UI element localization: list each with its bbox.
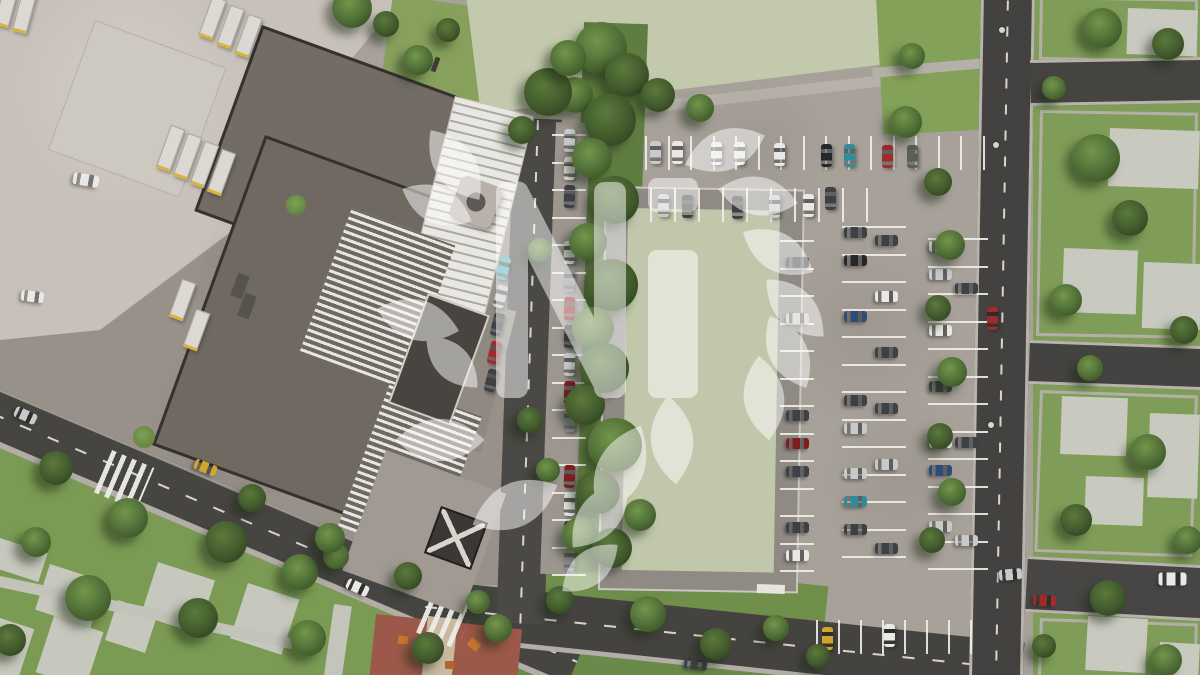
tree [592,528,632,568]
stalls-row-second-line [650,188,652,222]
tree [238,484,266,512]
tree [1082,8,1122,48]
car [563,464,575,487]
car [844,395,867,406]
car [563,492,575,515]
grass-circle [133,426,155,448]
car [907,145,918,168]
tree [484,614,512,642]
car [563,184,575,207]
tree [919,527,945,553]
stalls-col-de-line [928,403,988,405]
tree [528,238,552,262]
tree [39,451,73,485]
tree [436,18,460,42]
stalls-row-second-line [842,188,844,222]
car [875,459,898,470]
stalls-col-bc-line [842,556,906,558]
pad [1085,616,1148,673]
tree [1050,284,1082,316]
road-center-dashes [519,119,539,624]
play-equipment [445,661,454,669]
pad [1108,128,1200,189]
stalls-row-top-line [758,136,760,170]
stalls-row-top-line [645,136,647,170]
tree [763,615,789,641]
tree [508,116,536,144]
stalls-row-top-line [938,136,940,170]
car [1032,594,1056,606]
car [1158,573,1186,586]
stalls-lane-west-line [552,574,586,576]
tree [890,106,922,138]
tree [536,458,560,482]
tree [586,259,638,311]
tree [576,470,620,514]
pad [1060,396,1128,456]
stalls-row-second-line [746,188,748,222]
stalls-col-bc-line [842,336,906,338]
tree [572,138,612,178]
car [563,268,575,291]
stalls-col-a-line [780,433,814,435]
stalls-row-bottom-line [838,620,840,654]
car [929,465,952,476]
car [786,313,809,324]
stalls-col-a-line [780,488,814,490]
stalls-row-top-line [960,136,962,170]
tree [925,295,951,321]
pad [1084,476,1144,526]
stalls-row-second-line [794,188,796,222]
stalls-col-a-line [780,515,814,517]
car [563,296,575,319]
tree [1150,644,1182,675]
tree [290,620,326,656]
tree [1130,434,1166,470]
tree [205,521,247,563]
car [803,194,814,217]
stalls-col-a-line [780,378,814,380]
car [786,257,809,268]
car [20,289,44,303]
stalls-row-second-line [698,188,700,222]
tree [630,596,666,632]
tree [1174,526,1200,554]
car [844,468,867,479]
tree [569,223,607,261]
car [844,496,867,507]
tree [1072,134,1120,182]
car [844,227,867,238]
tree [806,644,830,668]
tree [700,628,732,660]
car [711,142,722,165]
car [786,410,809,421]
tree [1112,200,1148,236]
stalls-lane-west-line [552,217,586,219]
car [825,187,836,210]
stalls-row-bottom-line [860,620,862,654]
car [774,143,785,166]
stalls-col-a-line [780,295,814,297]
stalls-row-second-line [866,188,868,222]
field-side-box [757,584,785,594]
stalls-col-a-line [780,240,814,242]
tree [546,586,574,614]
tree [373,11,399,37]
tree [624,499,656,531]
car [734,142,745,165]
stalls-col-bc-line [842,446,906,448]
stalls-row-second-line [674,188,676,222]
tree [1077,355,1103,381]
stalls-row-top-line [690,136,692,170]
tree [641,78,675,112]
stalls-col-a-line [780,570,814,572]
car [821,144,832,167]
car [884,624,895,647]
stalls-col-bc-line [842,419,906,421]
stalls-col-de-line [928,266,988,268]
tree [937,357,967,387]
tree [1060,504,1092,536]
car [683,657,707,671]
tree [924,168,952,196]
car [955,437,978,448]
tree [21,527,51,557]
car [769,195,780,218]
car [563,352,575,375]
car [650,141,661,164]
tree [588,418,642,472]
car [844,524,867,535]
street-lamp [993,142,999,148]
tree [65,575,111,621]
car [875,235,898,246]
tree [1152,28,1184,60]
tree [686,94,714,122]
aerial-site-render [0,0,1200,675]
car [844,144,855,167]
tree [565,385,605,425]
tree [1170,316,1198,344]
stalls-row-bottom-line [926,620,928,654]
tree [178,598,218,638]
stalls-row-top-line [983,136,985,170]
tree [412,632,444,664]
car [986,306,997,329]
car [929,325,952,336]
stalls-row-second-line [818,188,820,222]
tree [550,40,586,76]
street-lamp [988,422,994,428]
tree [466,590,490,614]
car [658,194,669,217]
car [875,291,898,302]
car [955,535,978,546]
stalls-row-top-line [668,136,670,170]
stalls-row-bottom-line [904,620,906,654]
tree [1032,634,1056,658]
tree [899,43,925,69]
car [844,423,867,434]
tree [1042,76,1066,100]
stalls-col-bc-line [842,391,906,393]
car [786,438,809,449]
stalls-row-top-line [803,136,805,170]
stalls-col-de-line [928,458,988,460]
stalls-row-bottom-line [970,620,972,654]
tree [591,176,639,224]
tree [282,554,318,590]
stalls-col-a-line [780,405,814,407]
car [875,347,898,358]
car [882,145,893,168]
stalls-row-top-line [893,136,895,170]
tree [394,562,422,590]
stalls-col-de-line [928,513,988,515]
stalls-lane-west-line [552,437,586,439]
tree [1090,580,1126,616]
car [672,141,683,164]
tree [315,523,345,553]
car [875,403,898,414]
tree [517,407,543,433]
tree [938,478,966,506]
stalls-row-bottom-line [948,620,950,654]
stalls-row-top-line [870,136,872,170]
car [875,543,898,554]
car [732,196,743,219]
stalls-col-de-line [928,568,988,570]
car [786,550,809,561]
car [786,522,809,533]
road-east-branch-mid [1028,340,1200,390]
street-lamp [999,27,1005,33]
car [786,466,809,477]
car [929,269,952,280]
tree [935,230,965,260]
stalls-col-a-line [780,543,814,545]
grass-circle [286,195,306,215]
stalls-col-bc-line [842,281,906,283]
stalls-col-a-line [780,350,814,352]
tree [403,45,433,75]
stalls-row-second-line [722,188,724,222]
car [844,255,867,266]
stalls-col-a-line [780,460,814,462]
tree [927,423,953,449]
car [998,568,1022,581]
car [682,195,693,218]
stalls-col-de-line [928,348,988,350]
stalls-col-bc-line [842,364,906,366]
play-equipment [397,635,408,644]
car [844,311,867,322]
car [955,283,978,294]
tree [108,498,148,538]
